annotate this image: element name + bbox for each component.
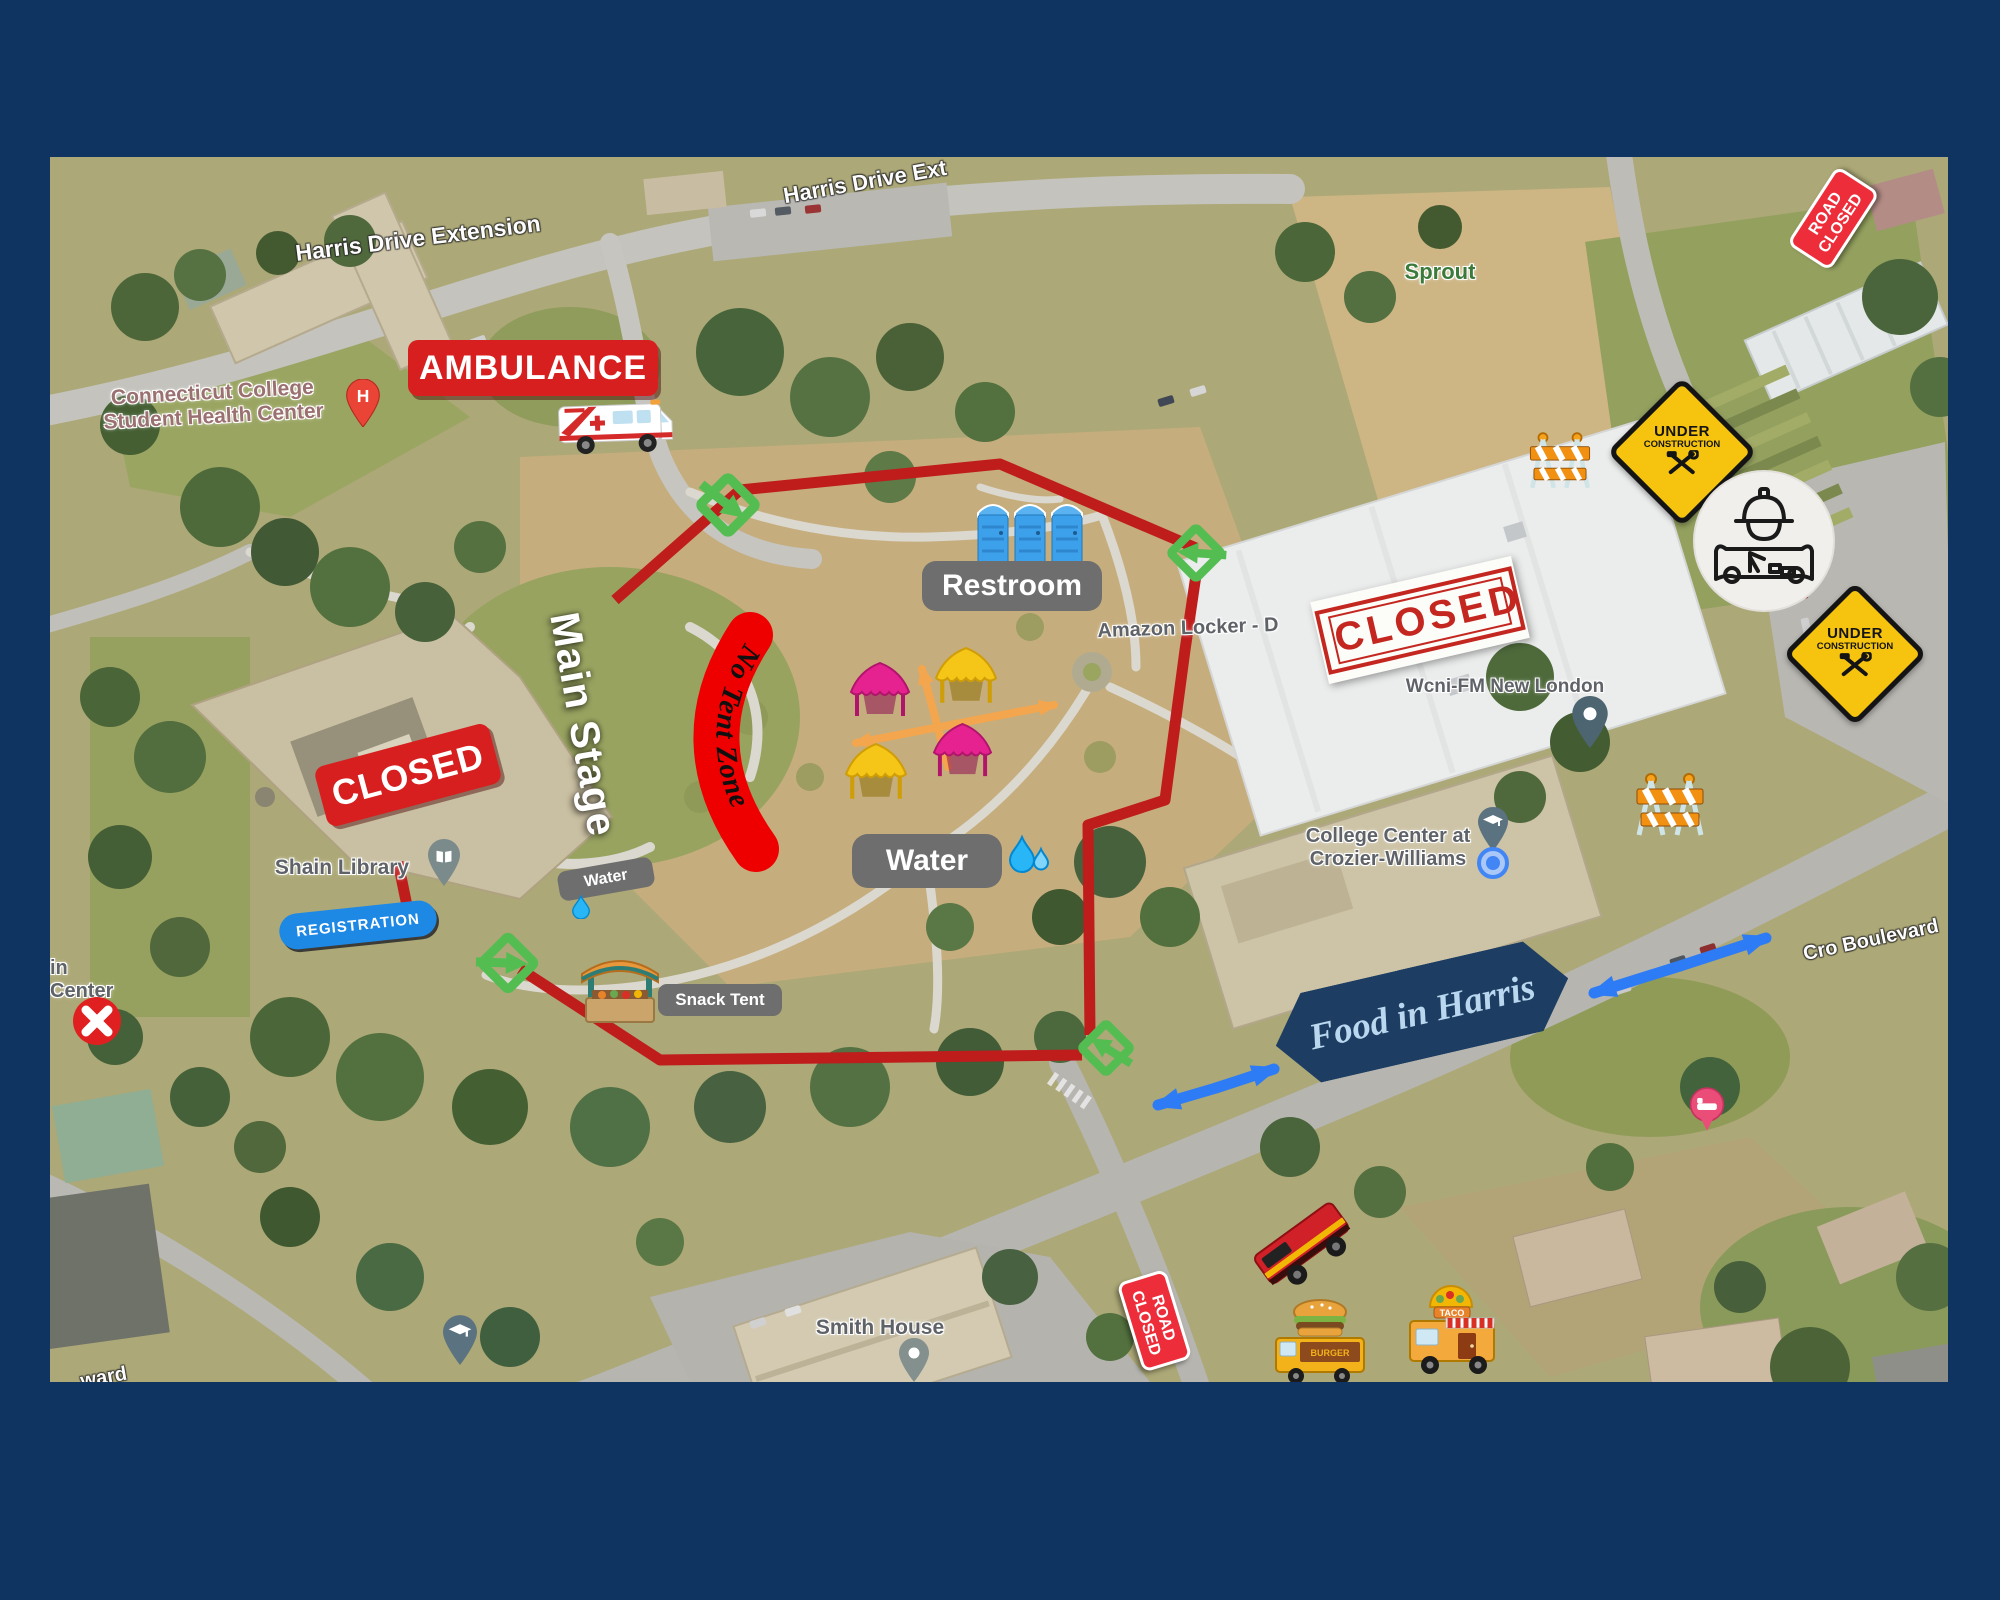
- poi-label-sprout: Sprout: [1400, 259, 1480, 284]
- snack-tent-pill: Snack Tent: [658, 984, 782, 1016]
- under-construction-2-line1: UNDER: [1817, 626, 1894, 642]
- location-pin-icon-smith: [899, 1338, 929, 1382]
- tent-icon-pink-2: [932, 723, 993, 780]
- under-construction-1-line2: CONSTRUCTION: [1644, 439, 1721, 449]
- under-construction-2-line2: CONSTRUCTION: [1817, 641, 1894, 651]
- entry-point-icon-3: [476, 936, 535, 990]
- education-pin-icon-college: [1478, 807, 1508, 851]
- food-truck-icon-taco: TACO: [1396, 1273, 1504, 1377]
- poi-label-shain-library: Shain Library: [242, 856, 442, 880]
- poi-label-smith-house: Smith House: [780, 1316, 980, 1340]
- food-truck-icon-burger: BURGER: [1270, 1294, 1370, 1382]
- construction-worker-badge: [1692, 469, 1836, 613]
- taco-truck-text: TACO: [1440, 1308, 1465, 1318]
- crosswalk: [1047, 1072, 1092, 1109]
- hospital-pin-letter: H: [357, 386, 370, 406]
- burger-truck-text: BURGER: [1310, 1348, 1350, 1358]
- under-construction-1-line1: UNDER: [1644, 424, 1721, 440]
- hospital-pin-icon: H: [346, 379, 380, 427]
- poi-label-wcni-fm: Wcni-FM New London: [1380, 676, 1630, 698]
- library-pin-icon: [428, 839, 460, 886]
- hotel-pin-icon: [1688, 1087, 1726, 1133]
- barricade-icon-2: [1631, 771, 1709, 839]
- hammer-wrench-icon: [1838, 651, 1872, 677]
- tent-icon-pink-1: [849, 662, 911, 720]
- tent-icon-yellow-2: [844, 743, 908, 803]
- poi-label-college-center-line2: Crozier-Williams: [1288, 848, 1488, 871]
- poi-label-college-center-line1: College Center at: [1288, 825, 1488, 848]
- restroom-pill: Restroom: [922, 561, 1102, 611]
- tent-icon-yellow-1: [934, 647, 998, 707]
- poi-label-college-center: College Center at Crozier-Williams: [1288, 825, 1488, 871]
- snack-tent-icon: [578, 946, 662, 1026]
- location-pin-icon-wcni: [1572, 696, 1608, 748]
- no-tent-zone-band: No Tent Zone: [709, 635, 767, 849]
- college-center-dot-icon: [1476, 846, 1510, 880]
- barricade-icon-1: [1525, 429, 1595, 493]
- education-pin-icon-southwest: [443, 1315, 477, 1365]
- campus-event-map: No Tent Zone: [50, 157, 1948, 1382]
- water-drop-icon-small: [570, 895, 592, 919]
- water-drops-icon: [1005, 835, 1051, 883]
- water-station-pill: Water: [852, 834, 1002, 888]
- ambulance-icon: [554, 385, 681, 463]
- poi-label-partial-center-line1: in: [50, 957, 170, 980]
- no-entry-icon: [71, 995, 123, 1047]
